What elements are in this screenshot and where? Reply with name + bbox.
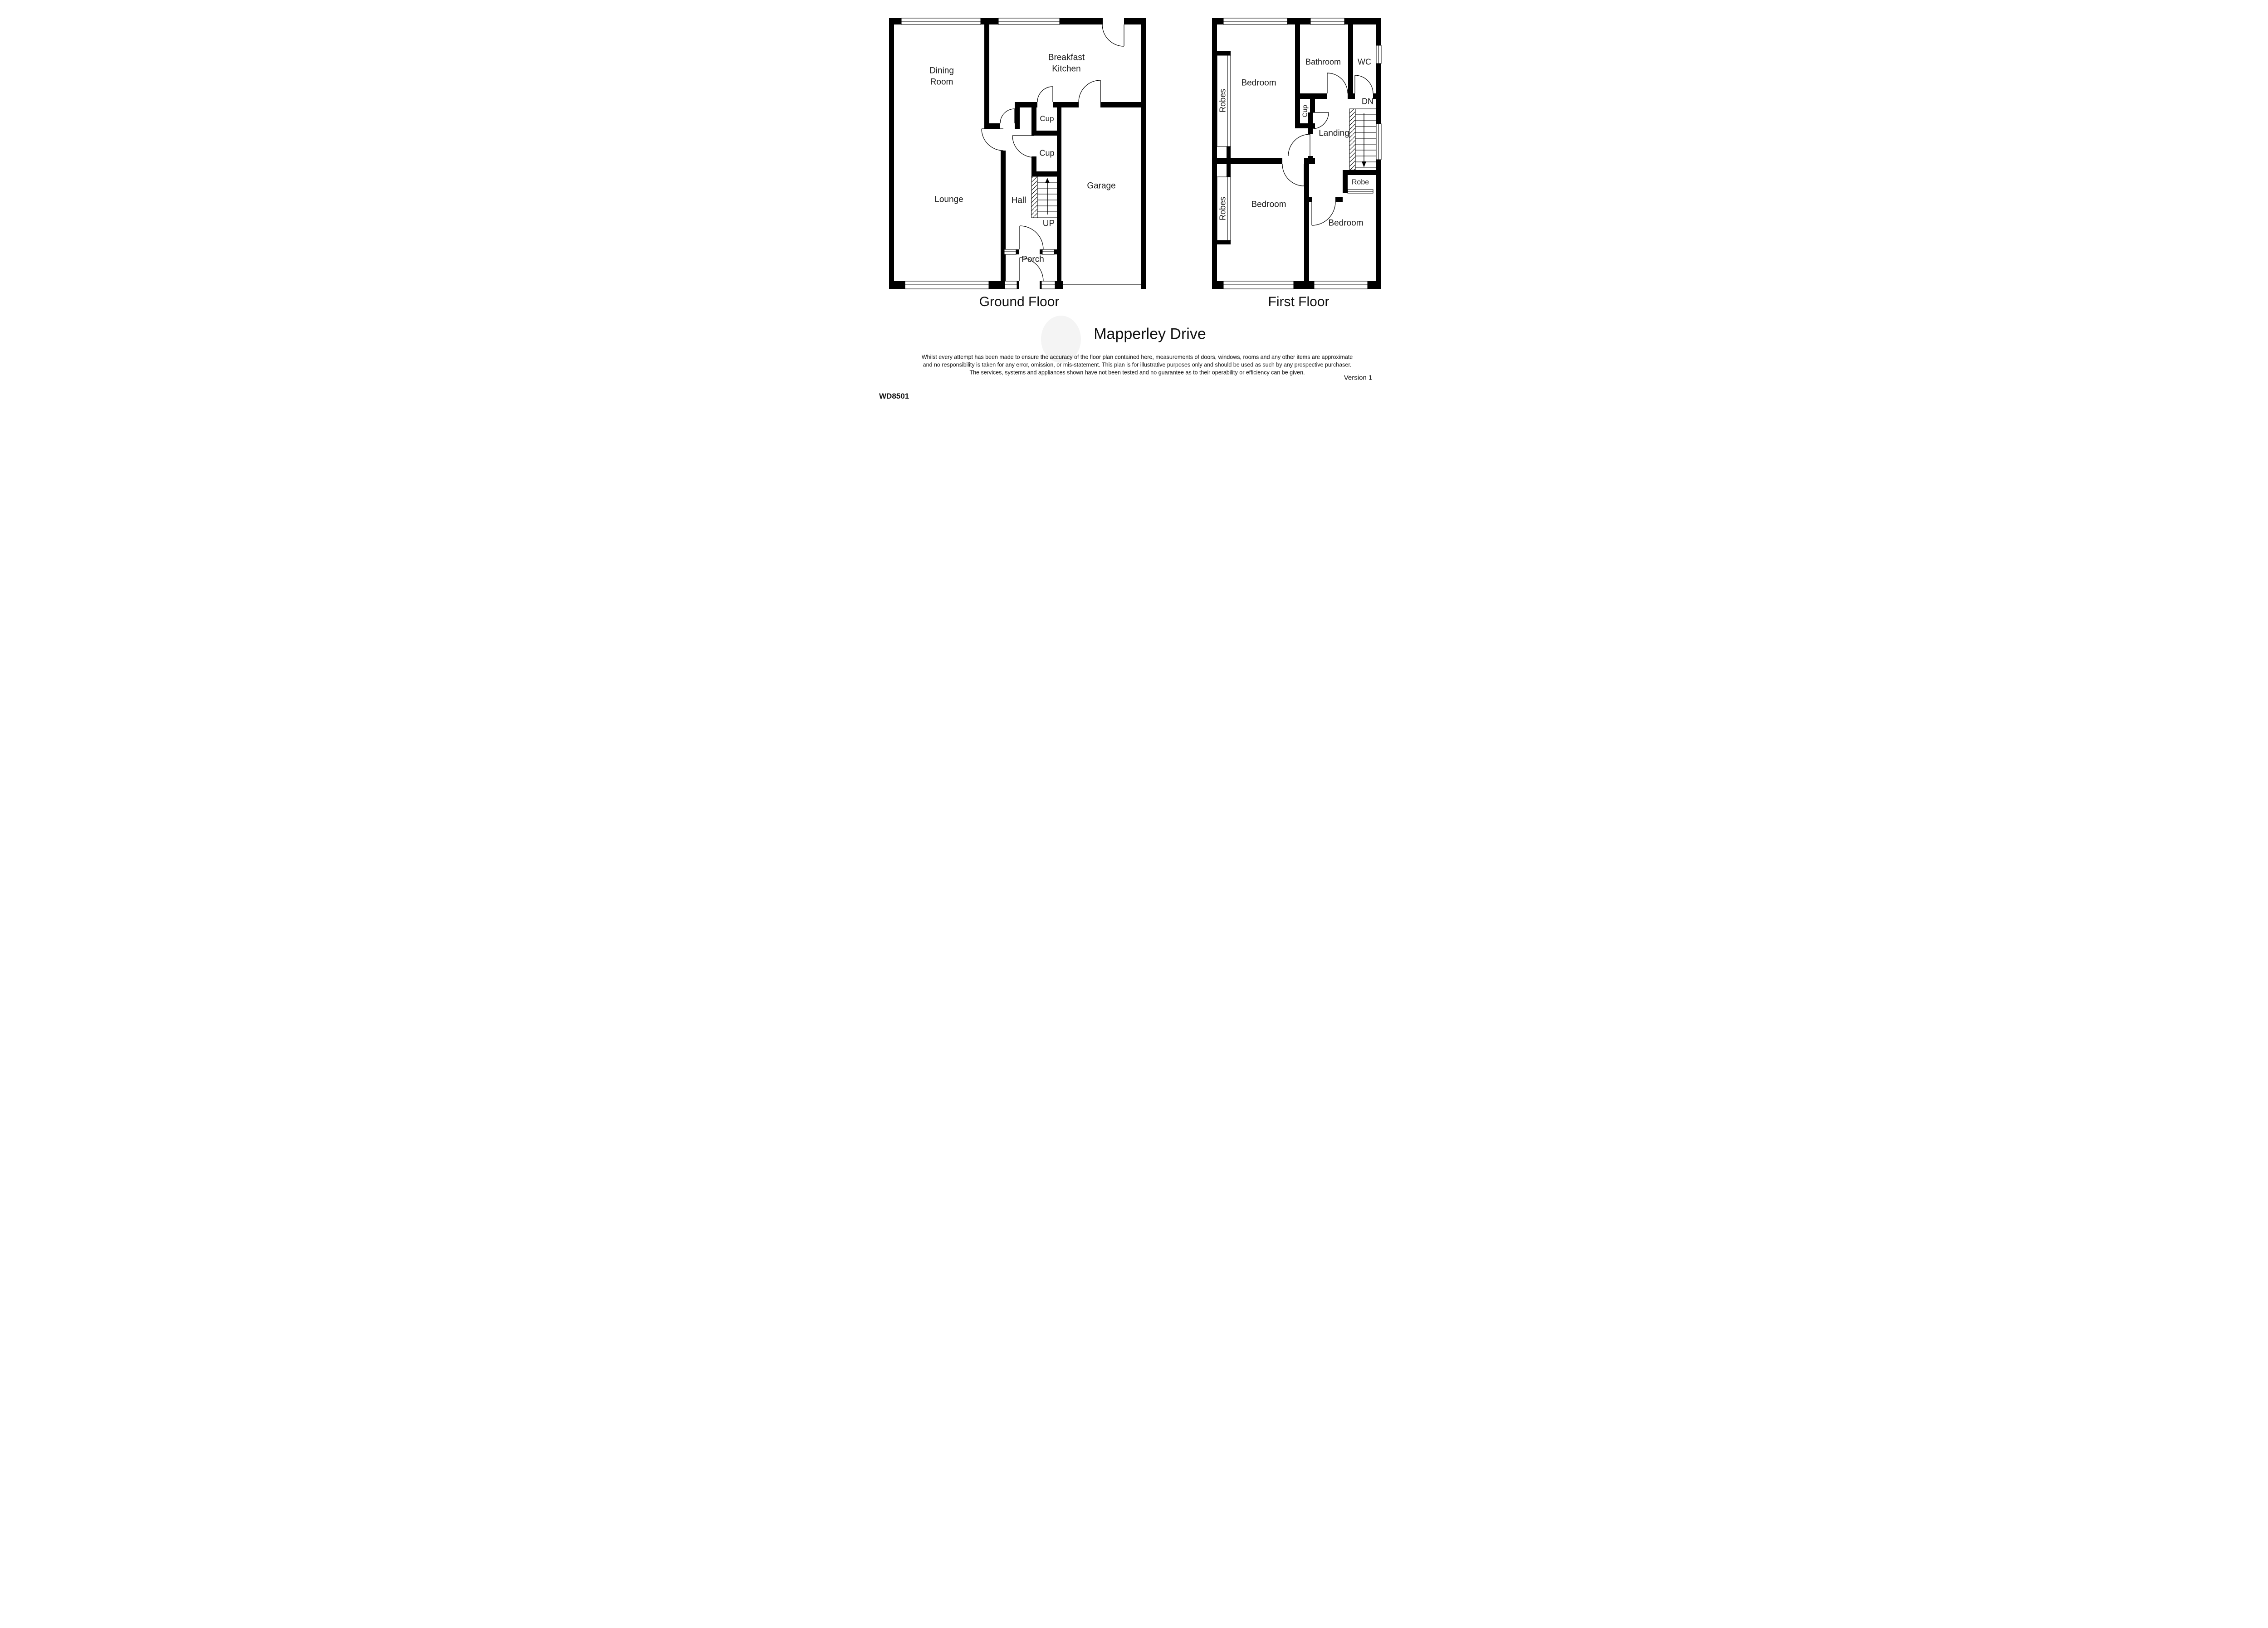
address-title: Mapperley Drive (1094, 326, 1206, 343)
room-label-dining-room-line-1: Dining (929, 65, 954, 77)
ground-floor-windows (901, 18, 1060, 289)
room-label-robes-top: Robes (1217, 89, 1228, 112)
room-label-dining-room-line-2: Room (929, 77, 954, 88)
disclaimer-line-1: Whilst every attempt has been made to en… (894, 354, 1380, 361)
room-label-cup-middle: Cup (1039, 148, 1054, 158)
room-label-breakfast-kitchen-line-2: Kitchen (1048, 63, 1085, 75)
room-label-landing: Landing (1319, 128, 1349, 140)
room-label-dining-room: DiningRoom (929, 65, 954, 88)
ground-floor-walls (889, 18, 1146, 289)
room-label-stairs-down: DN (1362, 96, 1374, 107)
room-label-stairs-up: UP (1043, 219, 1055, 230)
room-label-cup-top: Cup (1040, 114, 1054, 124)
ground-floor-plan (889, 18, 1146, 289)
room-label-robe: Robe (1352, 178, 1369, 188)
disclaimer-line-3: The services, systems and appliances sho… (894, 369, 1380, 377)
room-label-robes-bottom: Robes (1217, 197, 1228, 220)
room-label-bedroom-right: Bedroom (1328, 218, 1363, 229)
room-label-breakfast-kitchen-line-1: Breakfast (1048, 52, 1085, 63)
disclaimer-line-2: and no responsibility is taken for any e… (894, 361, 1380, 369)
first-floor-title: First Floor (1268, 294, 1330, 310)
room-label-wc: WC (1358, 57, 1371, 67)
first-floor-walls (1212, 18, 1381, 289)
room-label-breakfast-kitchen: BreakfastKitchen (1048, 52, 1085, 74)
version-label: Version 1 (1344, 374, 1373, 382)
first-floor-stairs (1349, 109, 1376, 170)
reference-code: WD8501 (879, 392, 909, 401)
room-label-cup-landing: Cup (1300, 105, 1310, 117)
disclaimer-text: Whilst every attempt has been made to en… (894, 354, 1380, 377)
room-label-lounge: Lounge (934, 195, 963, 206)
stairs-down-arrow (1362, 113, 1366, 167)
floorplan-page: DiningRoomBreakfastKitchenCupCupHallLoun… (850, 0, 1417, 407)
room-label-garage: Garage (1087, 181, 1115, 192)
ground-floor-title: Ground Floor (979, 294, 1060, 310)
room-label-bedroom-front: Bedroom (1241, 78, 1276, 89)
first-floor-plan (1212, 18, 1381, 289)
stairs-up-arrow (1045, 178, 1050, 214)
ground-floor-stairs (1031, 176, 1057, 218)
room-label-hall: Hall (1012, 195, 1026, 207)
room-label-porch: Porch (1022, 254, 1044, 266)
room-label-bedroom-middle: Bedroom (1251, 200, 1286, 211)
room-label-bathroom: Bathroom (1305, 57, 1341, 67)
